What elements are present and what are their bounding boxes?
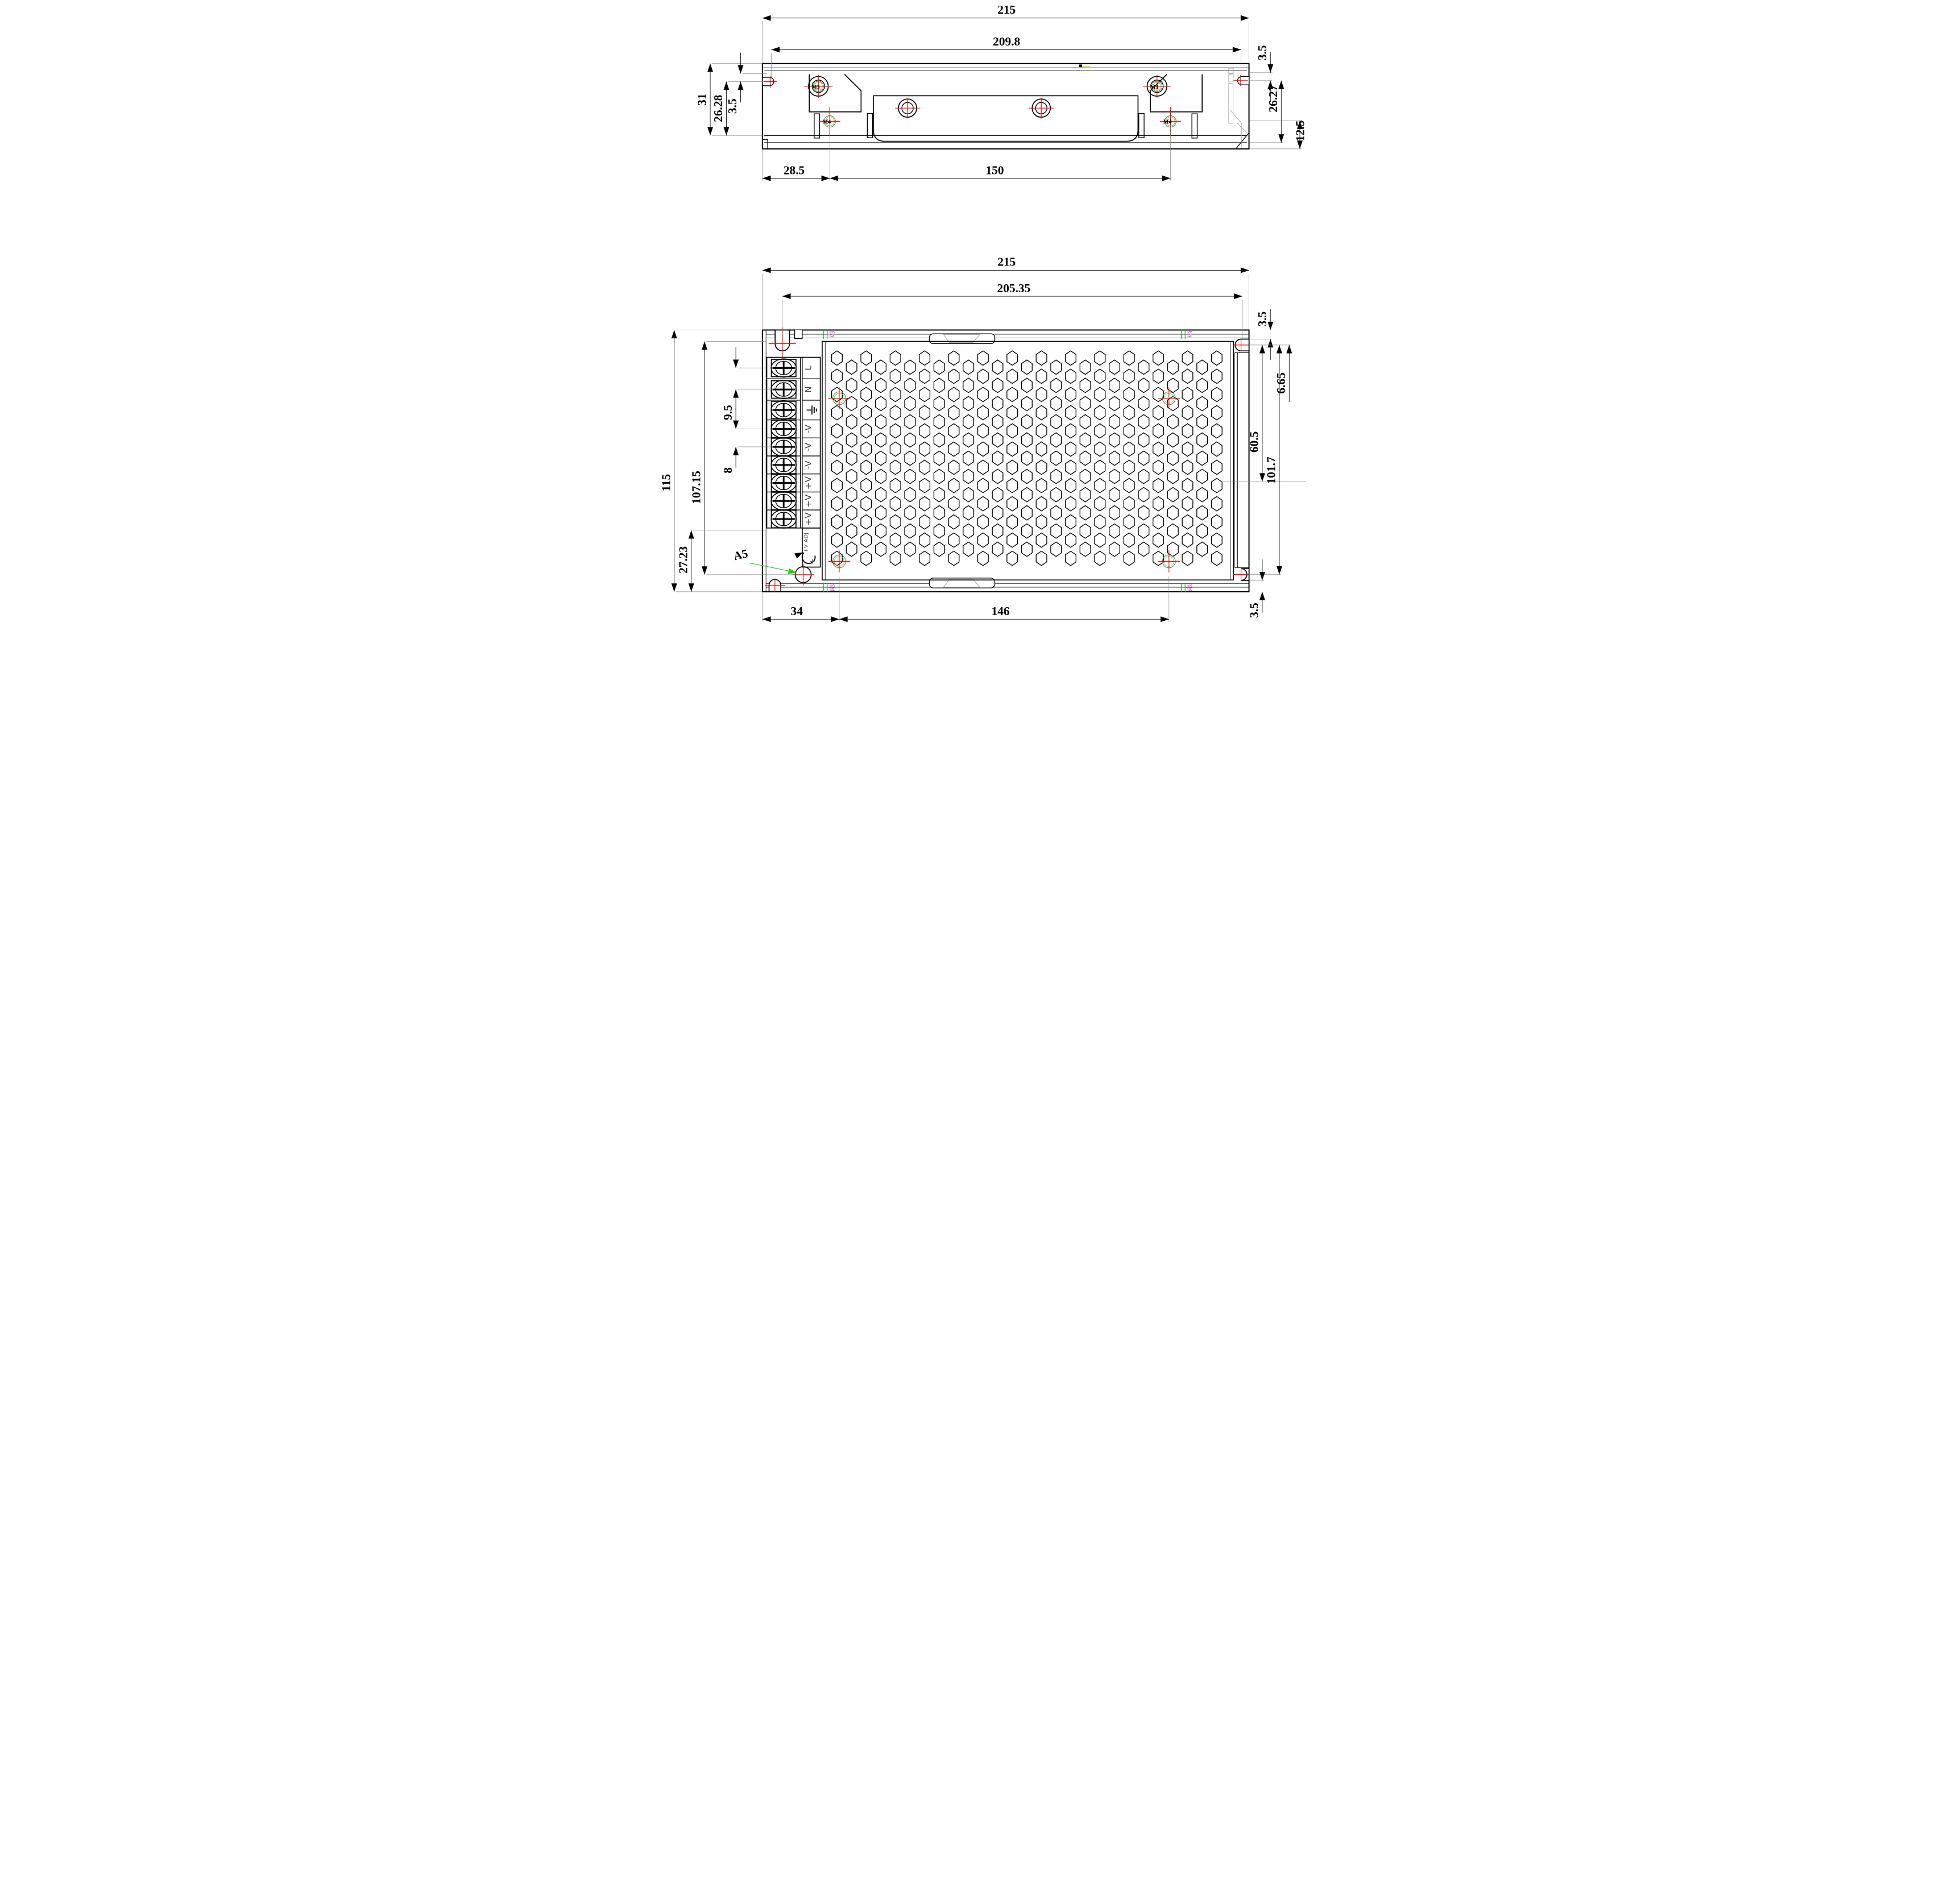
hex-vent-cell (905, 451, 915, 465)
hex-vent-cell (1196, 414, 1207, 429)
hex-vent-cell (934, 542, 944, 556)
hex-vent-cell (1080, 524, 1091, 538)
hex-vent-cell (890, 442, 901, 456)
hex-vent-cell (1211, 478, 1222, 492)
dim-arrowhead (671, 330, 677, 338)
hex-vent-cell (1138, 396, 1149, 410)
bv-topleft-sq-notch (794, 330, 802, 338)
tv-slot-stub (867, 114, 872, 138)
hex-vent-cell (963, 360, 973, 374)
hex-vent-cell (934, 524, 944, 538)
dim-arrowhead (1286, 345, 1292, 354)
hex-vent-cell (963, 378, 973, 392)
hex-vent-cell (963, 505, 973, 520)
hex-vent-cell (1153, 551, 1163, 565)
hex-vent-cell (1196, 396, 1207, 410)
screw-and-mount-holes: M3M3M4M4 (764, 75, 1248, 592)
dimension-text: 12.5 (1293, 121, 1307, 142)
hex-vent-cell (1021, 524, 1032, 538)
hex-vent-cell (1065, 478, 1076, 492)
hex-vent-cell (1021, 414, 1032, 429)
hex-vent-cell (860, 369, 871, 383)
hex-vent-cell (1036, 460, 1047, 474)
hex-vent-cell (1095, 496, 1105, 511)
hex-vent-cell (1021, 378, 1032, 392)
hex-vent-cell (1095, 369, 1105, 383)
hex-vent-cell (905, 414, 915, 429)
hex-vent-cell (1196, 469, 1207, 483)
terminal-label: -V (803, 442, 813, 451)
hex-vent-cell (905, 487, 915, 501)
hex-vent-cell (1021, 487, 1032, 501)
hex-vent-cell (992, 542, 1003, 556)
hex-vent-cell (919, 460, 930, 474)
hex-vent-cell (1080, 396, 1091, 410)
hex-vent-cell (875, 469, 886, 483)
hex-vent-cell (977, 533, 988, 547)
hex-vent-cell (1065, 351, 1076, 365)
dim-arrowhead (737, 65, 743, 74)
hex-vent-cell (963, 451, 973, 465)
hex-vent-cell (992, 433, 1003, 447)
bv-top-latch (929, 334, 994, 343)
hex-vent-cell (1211, 533, 1222, 547)
dim-arrowhead (723, 127, 729, 136)
hex-vent-cell (1021, 360, 1032, 374)
hex-vent-cell (919, 387, 930, 401)
dim-arrowhead (830, 176, 838, 181)
hex-vent-cell (1211, 514, 1222, 529)
hex-vent-cell (1153, 424, 1163, 438)
hex-vent-cell (1196, 360, 1207, 374)
hex-vent-cell (1021, 433, 1032, 447)
hex-vent-cell (1153, 496, 1163, 511)
hex-vent-cell (1021, 542, 1032, 556)
dim-arrowhead (1240, 267, 1249, 273)
hex-vent-cell (963, 396, 973, 410)
hex-vent-cell (948, 351, 959, 365)
hex-vent-cell (1196, 542, 1207, 556)
hex-vent-cell (1109, 469, 1120, 483)
hex-vent-cell (1050, 469, 1061, 483)
hex-vent-cell (1006, 533, 1017, 547)
hex-vent-cell (948, 496, 959, 511)
hex-vent-cell (1109, 360, 1120, 374)
adjuster-plus: + (809, 557, 815, 566)
dim-arrowhead (733, 447, 739, 455)
hex-vent-cell (860, 405, 871, 420)
hex-vent-cell (846, 433, 857, 447)
hex-vent-cell (1006, 496, 1017, 511)
hex-vent-cell (1080, 505, 1091, 520)
hex-vent-cell (831, 460, 842, 474)
hex-vent-cell (977, 405, 988, 420)
hex-vent-cell (890, 533, 901, 547)
dimension-text: 9.5 (720, 405, 734, 420)
dim-arrowhead (1162, 176, 1170, 181)
hex-vent-cell (1065, 424, 1076, 438)
dimension-text: 27.23 (676, 546, 690, 574)
hex-vent-cell (1036, 442, 1047, 456)
hex-vent-cell (1109, 542, 1120, 556)
hex-vent-cell (1080, 451, 1091, 465)
tv-slot-stub (1138, 114, 1143, 138)
hex-vent-cell (948, 405, 959, 420)
dim-arrowhead (1267, 64, 1273, 73)
dim-arrowhead (782, 293, 790, 299)
hex-vent-cell (992, 451, 1003, 465)
hex-vent-cell (1080, 487, 1091, 501)
hex-vent-cell (934, 433, 944, 447)
hex-vent-cell (831, 514, 842, 529)
hex-vent-cell (1124, 460, 1134, 474)
hex-vent-cell (890, 369, 901, 383)
dimension-text: 3.5 (726, 98, 739, 114)
hex-vent-cell (1138, 433, 1149, 447)
hex-vent-cell (992, 505, 1003, 520)
hex-vent-cell (875, 542, 886, 556)
dimension-text: 107.15 (689, 471, 703, 504)
hex-vent-cell (1065, 514, 1076, 529)
hex-vent-cell (992, 524, 1003, 538)
hex-vent-cell (1109, 524, 1120, 538)
hex-vent-cell (919, 514, 930, 529)
hex-vent-cell (934, 487, 944, 501)
hex-vent-cell (1080, 433, 1091, 447)
hex-vent-cell (1006, 405, 1017, 420)
hex-vent-cell (890, 551, 901, 565)
terminal-label: +V (803, 494, 813, 508)
hex-vent-cell (919, 551, 930, 565)
hex-vent-cell (1095, 514, 1105, 529)
dim-arrowhead (1296, 140, 1302, 149)
hex-vent-cell (1167, 487, 1178, 501)
hex-vent-cell (1050, 360, 1061, 374)
hex-vent-cell (1124, 514, 1134, 529)
hex-vent-cell (1065, 533, 1076, 547)
hex-vent-cell (890, 478, 901, 492)
hex-vent-cell (919, 424, 930, 438)
hex-vent-cell (860, 460, 871, 474)
dim-arrowhead (733, 360, 739, 368)
hex-vent-cell (846, 378, 857, 392)
tv-body-outline (762, 64, 1249, 149)
hex-vent-cell (1006, 442, 1017, 456)
hex-vent-cell (875, 451, 886, 465)
hex-vent-cell (875, 414, 886, 429)
hex-vent-cell (846, 469, 857, 483)
dimension-text: 215 (997, 255, 1016, 269)
a5-hole-label: A5 (732, 547, 749, 563)
hex-vent-cell (1124, 405, 1134, 420)
hex-vent-cell (1065, 369, 1076, 383)
hex-vent-cell (1065, 496, 1076, 511)
hex-vent-cell (1124, 424, 1134, 438)
hex-vent-cell (1065, 460, 1076, 474)
hex-vent-cell (1050, 414, 1061, 429)
hex-vent-cell (1021, 396, 1032, 410)
hex-vent-cell (1182, 478, 1193, 492)
dim-arrowhead (1232, 47, 1241, 52)
hex-vent-cell (1050, 396, 1061, 410)
dimension-text: 34 (790, 604, 803, 618)
hex-vent-cell (831, 387, 842, 401)
hex-vent-cell (1080, 378, 1091, 392)
dimension-text: 6.65 (1274, 372, 1287, 393)
hex-vent-cell (846, 524, 857, 538)
dim-arrowhead (1161, 616, 1169, 622)
leader-annotations: A5 (732, 547, 796, 574)
hex-vent-cell (1124, 442, 1134, 456)
hex-vent-cell (992, 414, 1003, 429)
hex-vent-cell (1153, 460, 1163, 474)
hex-vent-cell (831, 442, 842, 456)
hex-vent-cell (1006, 478, 1017, 492)
hex-vent-cell (1167, 414, 1178, 429)
drawing-sheet: LN-V-V-V+V+V+V+V ADJ+ M3M3M4M4 M3M3M3M3 … (653, 0, 1307, 627)
hex-vent-cell (1182, 351, 1193, 365)
hex-vent-cell (1211, 405, 1222, 420)
hex-vent-cell (1080, 360, 1091, 374)
hex-vent-cell (846, 414, 857, 429)
dim-arrowhead (1240, 15, 1249, 21)
hex-vent-cell (1095, 387, 1105, 401)
hex-vent-cell (905, 360, 915, 374)
hex-vent-cell (1138, 542, 1149, 556)
hex-vent-cell (1124, 551, 1134, 565)
hex-vent-cell (1006, 460, 1017, 474)
hex-vent-cell (846, 360, 857, 374)
hex-vent-cell (1006, 551, 1017, 565)
dimension-text: 3.5 (1255, 45, 1269, 60)
hex-vent-cell (890, 351, 901, 365)
hex-vent-cell (1109, 451, 1120, 465)
hex-vent-cell (934, 396, 944, 410)
hex-vent-cell (963, 433, 973, 447)
dimension-text: M3 (811, 84, 819, 90)
dim-arrowhead (702, 342, 707, 350)
dimension-text: 215 (997, 3, 1016, 16)
hex-vent-cell (890, 405, 901, 420)
hex-vent-cell (977, 424, 988, 438)
cad-drawing: LN-V-V-V+V+V+V+V ADJ+ M3M3M4M4 M3M3M3M3 … (653, 0, 1307, 627)
hex-vent-cell (977, 514, 988, 529)
hex-vent-cell (1196, 487, 1207, 501)
hex-vent-cell (831, 369, 842, 383)
hex-vent-cell (1006, 351, 1017, 365)
hex-vent-cell (948, 442, 959, 456)
hex-vent-cell (1196, 524, 1207, 538)
hex-vent-cell (1211, 496, 1222, 511)
hex-vent-cell (1182, 369, 1193, 383)
hex-vent-cell (1021, 505, 1032, 520)
hex-vent-cell (977, 442, 988, 456)
hex-vent-cell (905, 505, 915, 520)
hex-vent-cell (1138, 378, 1149, 392)
hex-vent-cell (846, 542, 857, 556)
hex-vent-cell (875, 524, 886, 538)
hex-vent-cell (860, 387, 871, 401)
hex-vent-cell (1182, 405, 1193, 420)
hex-vent-cell (1153, 351, 1163, 365)
hex-vent-cell (860, 496, 871, 511)
dim-arrowhead (1259, 592, 1265, 600)
hex-vent-cell (1095, 424, 1105, 438)
hex-vent-cell (831, 424, 842, 438)
tick-label: M3 (1188, 584, 1193, 591)
terminal-label: N (803, 386, 813, 392)
dimension-text: 115 (659, 474, 673, 492)
hex-vent-cell (1124, 387, 1134, 401)
hex-vent-cell (1211, 351, 1222, 365)
hex-vent-cell (1006, 369, 1017, 383)
hex-vent-cell (831, 496, 842, 511)
tick-label: M3 (830, 584, 835, 591)
hex-vent-cell (1036, 424, 1047, 438)
hex-vent-cell (831, 478, 842, 492)
hex-vent-cell (1109, 487, 1120, 501)
hex-vent-cell (1138, 505, 1149, 520)
hex-vent-cell (1211, 387, 1222, 401)
terminal-block-cells: LN-V-V-V+V+V+V+V ADJ+ (766, 359, 820, 565)
hex-vent-cell (1036, 369, 1047, 383)
hex-vent-cell (890, 496, 901, 511)
hex-vent-cell (1050, 487, 1061, 501)
hex-vent-cell (1196, 505, 1207, 520)
hex-vent-cell (1036, 551, 1047, 565)
hex-vent-cell (1036, 351, 1047, 365)
hex-vent-cell (1036, 496, 1047, 511)
hex-vent-cell (1095, 351, 1105, 365)
hex-vent-cell (1080, 414, 1091, 429)
hex-vent-cell (1036, 514, 1047, 529)
dimension-text: 3.5 (1247, 603, 1261, 618)
terminal-label: +V (803, 476, 813, 489)
hex-vent-cell (1050, 542, 1061, 556)
hex-vent-cell (1109, 378, 1120, 392)
hex-vent-cell (860, 478, 871, 492)
hex-vent-cell (846, 505, 857, 520)
hex-vent-cell (890, 460, 901, 474)
hex-vent-cell (905, 524, 915, 538)
hex-vent-cell (919, 496, 930, 511)
hex-vent-cell (963, 542, 973, 556)
hex-vent-cell (1182, 533, 1193, 547)
hex-vent-cell (1196, 451, 1207, 465)
dim-arrowhead (1276, 345, 1282, 354)
hex-vent-cell (1138, 469, 1149, 483)
dim-arrowhead (1259, 345, 1265, 354)
hex-vent-cell (934, 451, 944, 465)
dim-arrowhead (1278, 134, 1284, 143)
hex-vent-cell (919, 442, 930, 456)
hex-vent-cell (1182, 496, 1193, 511)
hex-vent-cell (1036, 533, 1047, 547)
hex-vent-cell (1138, 487, 1149, 501)
hex-vent-cell (963, 524, 973, 538)
hex-vent-cell (1065, 442, 1076, 456)
hex-vent-cell (860, 424, 871, 438)
hex-vent-cell (875, 433, 886, 447)
dim-arrowhead (821, 176, 830, 181)
hex-vent-cell (1109, 505, 1120, 520)
hex-vent-cell (934, 505, 944, 520)
hex-vent-cell (1109, 396, 1120, 410)
dim-arrowhead (831, 616, 839, 622)
hex-vent-cell (846, 487, 857, 501)
tick-label: M3 (830, 331, 835, 338)
hex-vent-cell (934, 378, 944, 392)
hex-vent-cell (875, 487, 886, 501)
dimension-text: M3 (1150, 84, 1158, 90)
hex-vent-cell (860, 442, 871, 456)
dim-arrowhead (839, 616, 847, 622)
terminal-label: L (803, 366, 813, 371)
hex-vent-cell (1182, 424, 1193, 438)
hex-vent-cell (963, 487, 973, 501)
hex-vent-cell (1050, 524, 1061, 538)
hex-vent-cell (1109, 433, 1120, 447)
hex-vent-cell (919, 533, 930, 547)
hex-vent-cell (1006, 514, 1017, 529)
hex-vent-cell (977, 351, 988, 365)
hex-vent-cell (1124, 496, 1134, 511)
dim-arrowhead (688, 583, 694, 592)
dim-arrowhead (733, 389, 739, 398)
hex-vent-cell (919, 351, 930, 365)
hex-vent-cell (1021, 469, 1032, 483)
hex-vent-cell (1124, 478, 1134, 492)
hex-vent-cell (831, 351, 842, 365)
dim-arrowhead (771, 47, 780, 52)
hex-vent-cell (977, 496, 988, 511)
hex-vent-cell (992, 469, 1003, 483)
hex-vent-cell (963, 414, 973, 429)
hex-vent-cell (1021, 451, 1032, 465)
tv-slot-stub (814, 114, 819, 138)
hex-vent-cell (1153, 369, 1163, 383)
hex-vent-cell (905, 542, 915, 556)
hex-vent-cell (1153, 405, 1163, 420)
hex-vent-cell (860, 533, 871, 547)
dim-arrowhead (688, 530, 694, 539)
dim-arrowhead (707, 64, 713, 72)
dim-arrowhead (702, 566, 707, 575)
hex-vent-cell (1211, 369, 1222, 383)
hex-vent-cell (1182, 514, 1193, 529)
hex-vent-cell (1167, 505, 1178, 520)
hex-vent-cell (1006, 424, 1017, 438)
dimension-text: M4 (822, 119, 830, 126)
hex-vent-cell (948, 533, 959, 547)
hex-vent-cell (1006, 387, 1017, 401)
hex-vent-cell (1196, 433, 1207, 447)
hex-vent-cell (1182, 460, 1193, 474)
hex-vent-cell (1211, 551, 1222, 565)
hex-vent-pattern (831, 351, 1222, 566)
hex-vent-cell (919, 478, 930, 492)
hex-vent-cell (977, 460, 988, 474)
dim-arrowhead (707, 127, 713, 136)
terminal-label: -V (803, 460, 813, 470)
hex-vent-cell (875, 378, 886, 392)
hex-vent-cell (905, 396, 915, 410)
tick-label: M3 (1188, 331, 1193, 338)
hex-vent-cell (948, 478, 959, 492)
hex-vent-cell (948, 514, 959, 529)
dimension-text: 146 (991, 604, 1009, 618)
hex-vent-cell (875, 505, 886, 520)
